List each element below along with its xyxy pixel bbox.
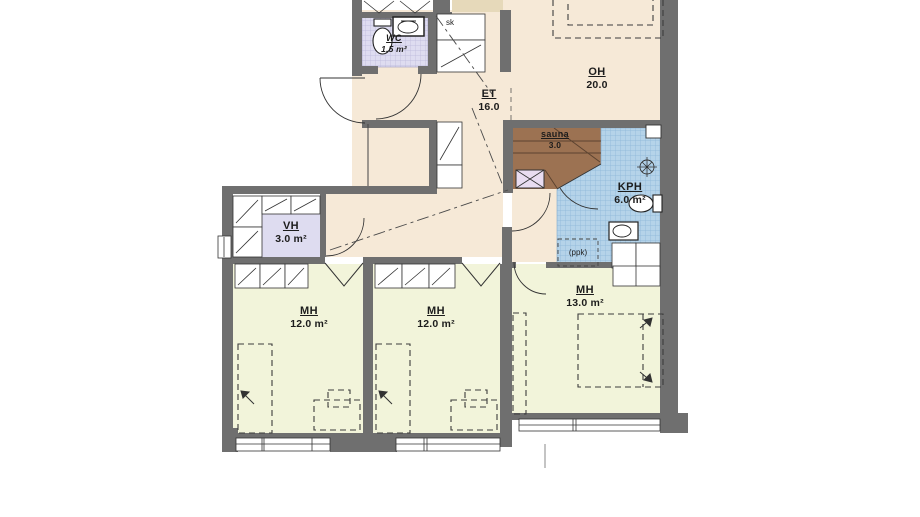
window-bedroom2 [396, 438, 500, 451]
duct-shaft [646, 125, 661, 138]
room-label-sk: sk [446, 18, 454, 27]
wc-toilet [373, 28, 392, 54]
vestibule-floor [512, 188, 557, 262]
bathroom-toilet-tank [653, 195, 662, 212]
bedroom1-floor [233, 264, 363, 434]
living-room-floor [500, 0, 660, 122]
wc-toilet-tank [374, 19, 391, 26]
bathroom-toilet [629, 195, 653, 212]
window-bedroom1 [236, 438, 330, 451]
floor-plan: WC 1.5 m² sk ET 16.0 OH 20.0 sauna 3.0 K… [0, 0, 920, 517]
floor-plan-drawing [0, 0, 920, 517]
corridor-floor [326, 194, 356, 257]
walkin-closet-floor [262, 214, 320, 257]
top-tan-block [452, 0, 503, 12]
bedroom3-floor [512, 264, 660, 414]
sk-closet [437, 14, 485, 40]
window-left-wall [218, 236, 231, 258]
room-label-ppk: (ppk) [569, 248, 587, 257]
bedroom2-floor [373, 264, 500, 434]
